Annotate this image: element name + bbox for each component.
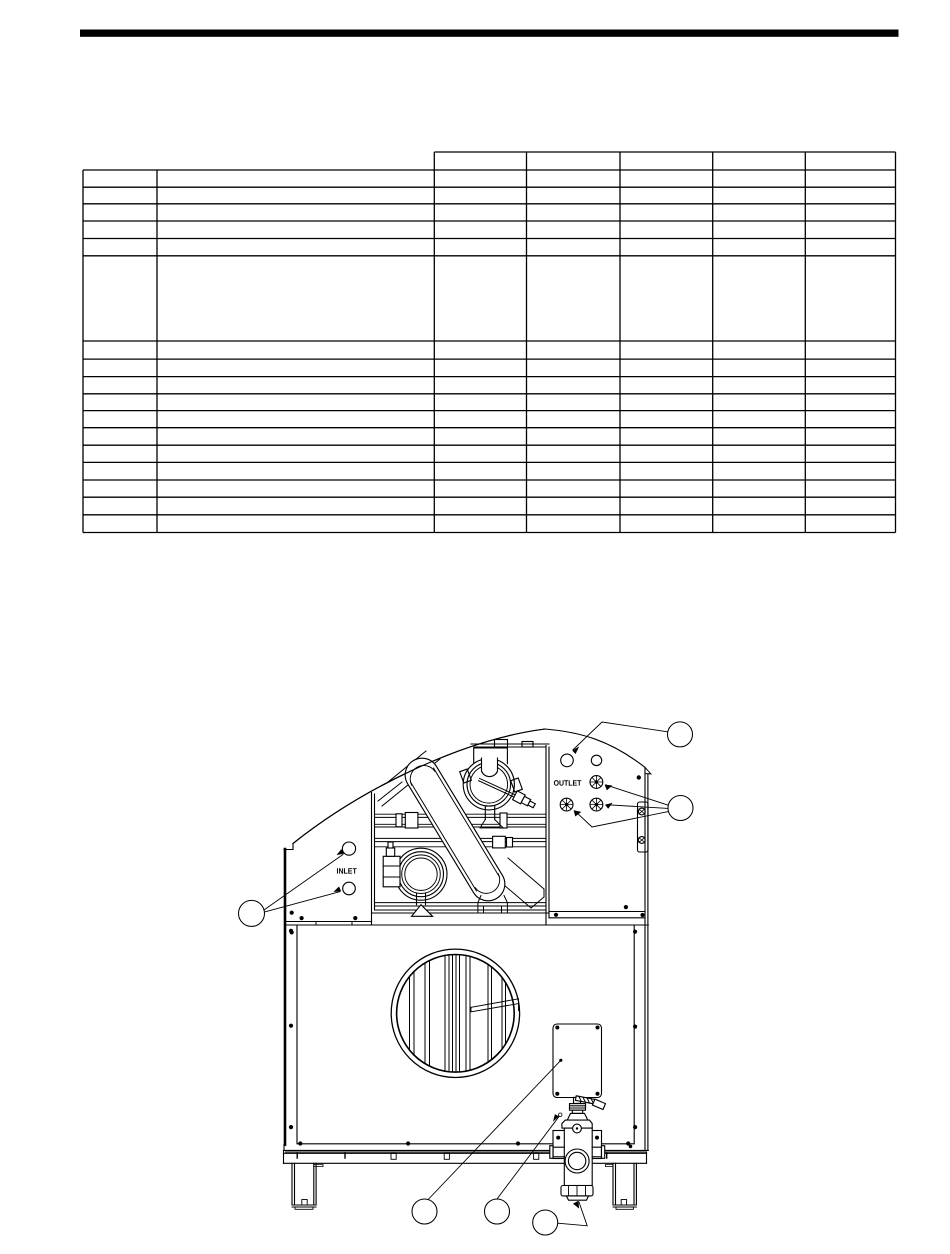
svg-text:INLET: INLET — [337, 867, 357, 876]
svg-text:OUTLET: OUTLET — [554, 779, 582, 788]
